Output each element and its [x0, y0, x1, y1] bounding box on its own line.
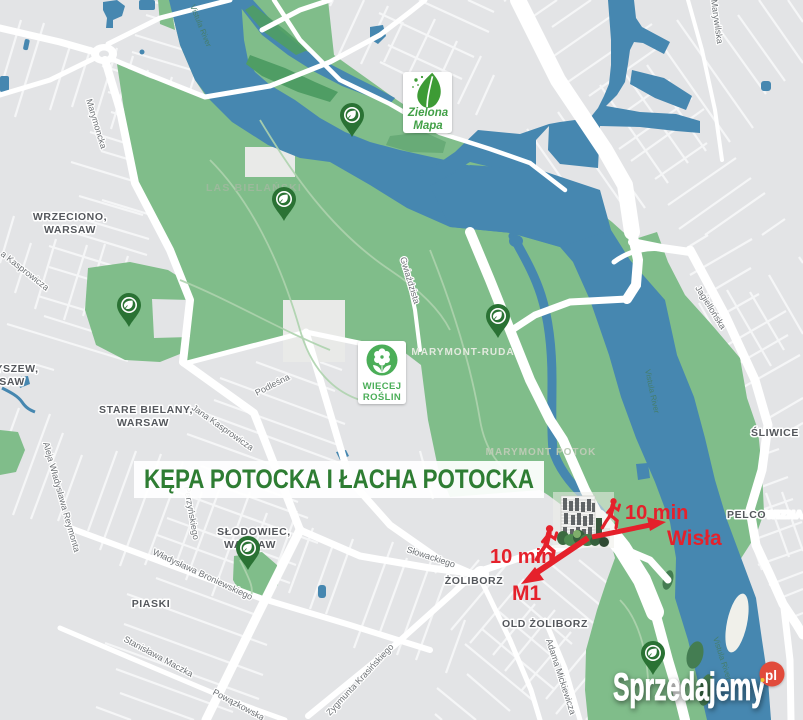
svg-text:STARE BIELANY,: STARE BIELANY,: [99, 404, 193, 416]
svg-text:SŁODOWIEC,: SŁODOWIEC,: [217, 526, 291, 538]
svg-text:Podleśna: Podleśna: [253, 372, 291, 398]
svg-text:YSZEW,: YSZEW,: [0, 363, 39, 375]
svg-text:Sprzedajemy: Sprzedajemy: [613, 666, 765, 709]
svg-text:Adama Mickiewicza: Adama Mickiewicza: [544, 638, 578, 716]
svg-text:10 min: 10 min: [625, 502, 688, 524]
svg-text:WARSAW: WARSAW: [44, 224, 96, 236]
svg-text:Zygmunta Krasińskiego: Zygmunta Krasińskiego: [324, 642, 395, 718]
svg-text:PELCOWIZNA: PELCOWIZNA: [727, 509, 803, 521]
svg-text:Wisła: Wisła: [667, 527, 722, 550]
svg-text:MARYMONT POTOK: MARYMONT POTOK: [486, 447, 597, 458]
svg-text:M1: M1: [512, 582, 541, 605]
svg-text:RSAW: RSAW: [0, 376, 25, 388]
svg-text:Aleja Władysława Reymonta: Aleja Władysława Reymonta: [41, 441, 82, 553]
svg-text:KĘPA POTOCKA I ŁACHA POTOCKA: KĘPA POTOCKA I ŁACHA POTOCKA: [144, 464, 534, 494]
svg-text:ROŚLIN: ROŚLIN: [363, 391, 401, 403]
svg-text:Mapa: Mapa: [413, 120, 443, 132]
svg-text:Marywilska: Marywilska: [709, 0, 725, 44]
svg-text:MARYMONT-RUDA: MARYMONT-RUDA: [411, 347, 514, 358]
svg-text:Zielona: Zielona: [407, 107, 449, 119]
svg-text:ŚLIWICE: ŚLIWICE: [751, 426, 799, 439]
svg-text:WRZECIONO,: WRZECIONO,: [33, 211, 107, 223]
svg-text:a Kasprowicza: a Kasprowicza: [0, 249, 51, 293]
svg-text:WARSAW: WARSAW: [117, 417, 169, 429]
svg-text:Marymoncka: Marymoncka: [84, 98, 109, 150]
svg-text:PIASKI: PIASKI: [132, 598, 171, 610]
svg-text:ŻOLIBORZ: ŻOLIBORZ: [445, 574, 503, 587]
svg-text:WIĘCEJ: WIĘCEJ: [363, 381, 402, 392]
svg-text:OLD ŻOLIBORZ: OLD ŻOLIBORZ: [502, 617, 588, 630]
svg-text:pl: pl: [765, 668, 777, 683]
